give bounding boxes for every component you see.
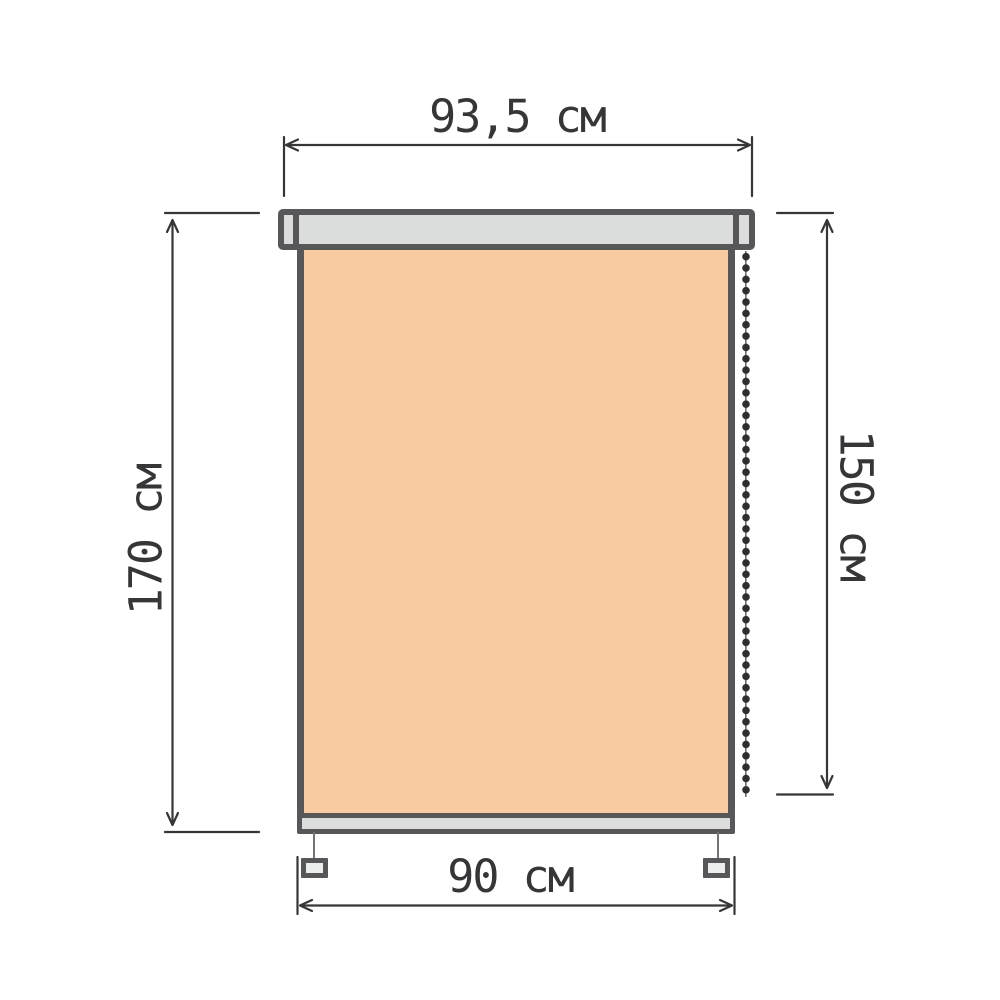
mounting-clip-left [301, 858, 328, 878]
cassette-tube [278, 209, 755, 250]
dim-full-height [165, 213, 259, 832]
clip-cord-right [717, 832, 719, 859]
clip-cord-left [313, 832, 315, 859]
dim-cassette-width [284, 137, 752, 196]
end-cap-divider-left [293, 214, 300, 245]
end-cap-divider-right [733, 214, 740, 245]
diagram-canvas: 93,5 см 170 см 150 см 90 см [0, 0, 1000, 1000]
label-cassette-width: 93,5 см [429, 94, 605, 139]
label-fabric-height: 150 см [834, 430, 879, 581]
bottom-rail [297, 813, 735, 834]
bead-chain [741, 251, 751, 797]
mounting-clip-right [703, 858, 730, 878]
dim-fabric-height [777, 213, 833, 795]
label-full-height: 170 см [124, 465, 169, 616]
fabric-panel [297, 248, 735, 814]
label-fabric-width: 90 см [447, 854, 572, 899]
